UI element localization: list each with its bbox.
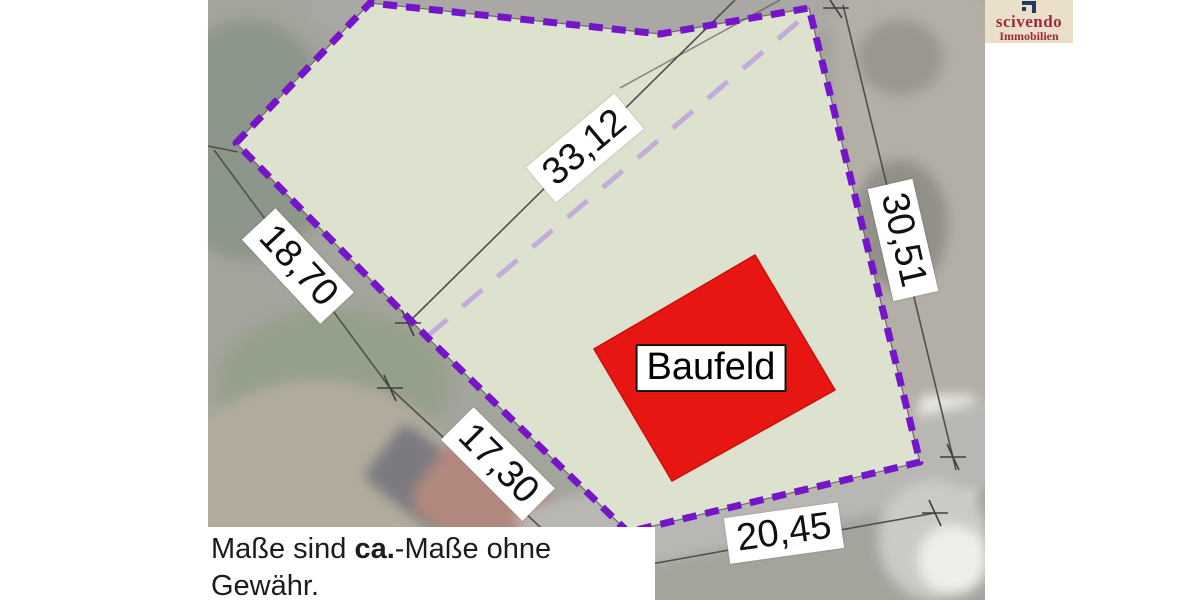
parcel-area	[236, 3, 920, 532]
disclaimer-text: Maße sind ca.-Maße ohne Gewähr. Lage und…	[203, 527, 655, 604]
disclaimer-line-1: Maße sind ca.-Maße ohne Gewähr.	[211, 531, 655, 604]
logo-brand-text: scivendo	[985, 13, 1073, 30]
logo-subtitle-text: Immobilien	[985, 30, 1073, 42]
scivendo-logo: scivendo Immobilien	[985, 0, 1073, 43]
baufeld-label: Baufeld	[636, 344, 787, 392]
corner-tick	[208, 146, 238, 152]
